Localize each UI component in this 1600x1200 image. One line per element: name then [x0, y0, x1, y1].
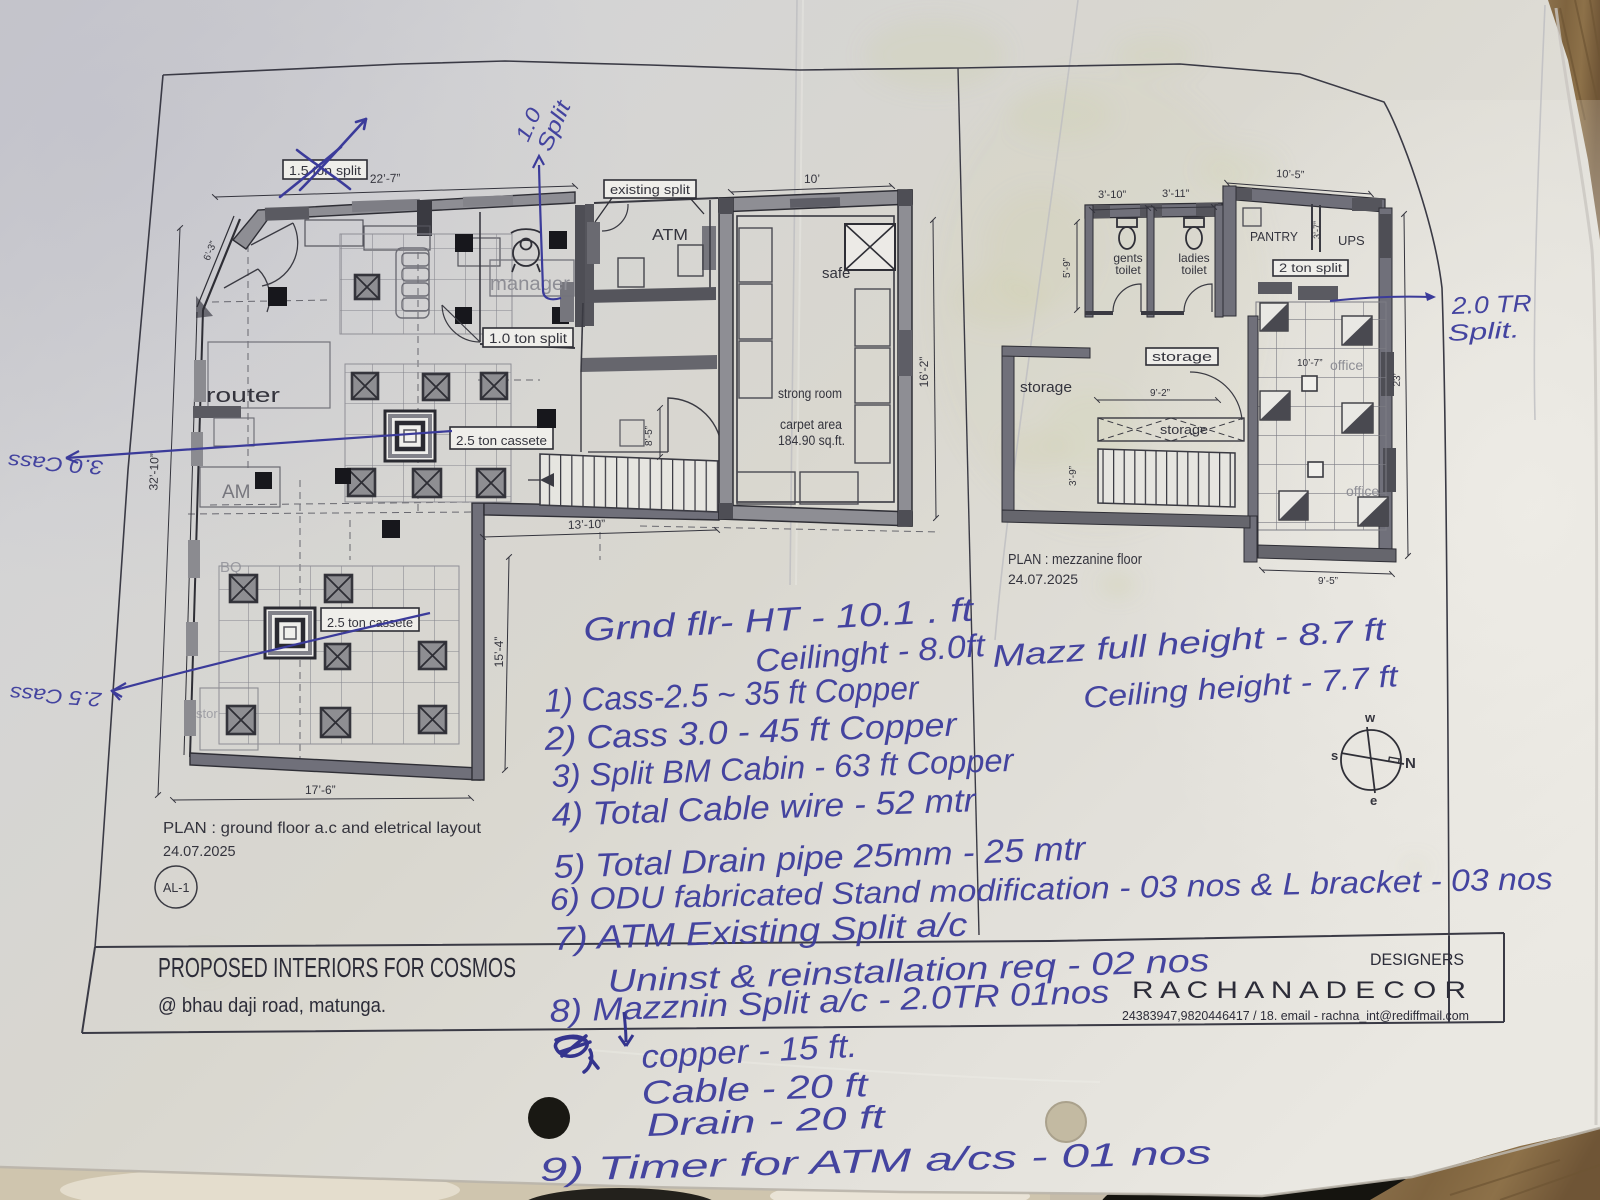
svg-text:3’-7”: 3’-7” [1312, 221, 1322, 239]
svg-text:safe: safe [822, 265, 850, 282]
svg-text:9’-5”: 9’-5” [1318, 576, 1338, 587]
svg-text:AL-1: AL-1 [163, 881, 189, 895]
svg-text:3’-11”: 3’-11” [1162, 188, 1190, 200]
svg-text:DESIGNERS: DESIGNERS [1370, 951, 1464, 969]
svg-text:PLAN : mezzanine floor: PLAN : mezzanine floor [1008, 551, 1142, 568]
svg-text:10’: 10’ [804, 172, 820, 186]
svg-text:13’-10”: 13’-10” [568, 517, 606, 532]
svg-text:17’-6”: 17’-6” [305, 783, 336, 797]
svg-text:3’-10”: 3’-10” [1098, 189, 1126, 201]
svg-text:10’-7”: 10’-7” [1297, 358, 1323, 369]
svg-text:9’-2”: 9’-2” [1150, 388, 1170, 399]
svg-text:16’-2”: 16’-2” [917, 357, 931, 388]
svg-text:3’-9”: 3’-9” [1068, 466, 1079, 486]
svg-text:N: N [1405, 755, 1416, 772]
svg-text:ATM: ATM [652, 227, 688, 244]
svg-text:5’-9”: 5’-9” [1062, 258, 1073, 278]
svg-text:e: e [1370, 793, 1377, 808]
svg-text:stor: stor [196, 706, 218, 721]
svg-text:23’: 23’ [1392, 373, 1403, 387]
svg-text:184.90 sq.ft.: 184.90 sq.ft. [778, 433, 845, 448]
svg-text:strong room: strong room [778, 386, 842, 401]
svg-text:existing split: existing split [610, 182, 690, 197]
svg-text:s: s [1331, 748, 1338, 763]
svg-text:manager: manager [490, 274, 571, 295]
svg-text:1.0 ton split: 1.0 ton split [489, 331, 567, 346]
svg-text:24383947,9820446417 / 18. emai: 24383947,9820446417 / 18. email - rachna… [1122, 1009, 1469, 1023]
svg-text:PLAN : ground floor a.c and e: PLAN : ground floor a.c and eletrical la… [163, 820, 482, 837]
svg-text:toilet: toilet [1115, 263, 1141, 277]
svg-text:@ bhau daji road, matunga.: @ bhau daji road, matunga. [158, 995, 386, 1017]
svg-text:office: office [1330, 357, 1363, 373]
svg-text:toilet: toilet [1181, 263, 1207, 277]
svg-text:PANTRY: PANTRY [1250, 229, 1298, 244]
svg-text:24.07.2025: 24.07.2025 [1008, 571, 1078, 587]
svg-text:32’-10”: 32’-10” [146, 453, 161, 491]
svg-text:R A C H A N A D E C O R: R A C H A N A D E C O R [1132, 977, 1466, 1004]
svg-text:carpet area: carpet area [780, 417, 842, 432]
svg-text:22’-7”: 22’-7” [370, 171, 401, 186]
svg-text:router: router [206, 385, 280, 407]
svg-text:storage: storage [1160, 423, 1208, 437]
svg-text:2.5 ton cassete: 2.5 ton cassete [456, 433, 547, 448]
svg-text:2.0 TR: 2.0 TR [1450, 290, 1532, 320]
svg-text:w: w [1364, 710, 1376, 725]
svg-text:PROPOSED INTERIORS FOR COSMOS: PROPOSED INTERIORS FOR COSMOS [158, 952, 516, 983]
svg-text:office: office [1346, 483, 1379, 499]
svg-text:storage: storage [1020, 379, 1072, 396]
svg-text:UPS: UPS [1338, 233, 1365, 248]
svg-text:Split.: Split. [1447, 316, 1520, 346]
svg-text:AM: AM [222, 482, 251, 503]
svg-text:15’-4”: 15’-4” [492, 637, 506, 668]
svg-text:storage: storage [1152, 350, 1212, 364]
svg-text:10’-5”: 10’-5” [1276, 168, 1305, 181]
svg-text:8’-5”: 8’-5” [644, 426, 655, 446]
svg-text:2 ton split: 2 ton split [1279, 263, 1343, 275]
svg-text:24.07.2025: 24.07.2025 [163, 844, 236, 860]
